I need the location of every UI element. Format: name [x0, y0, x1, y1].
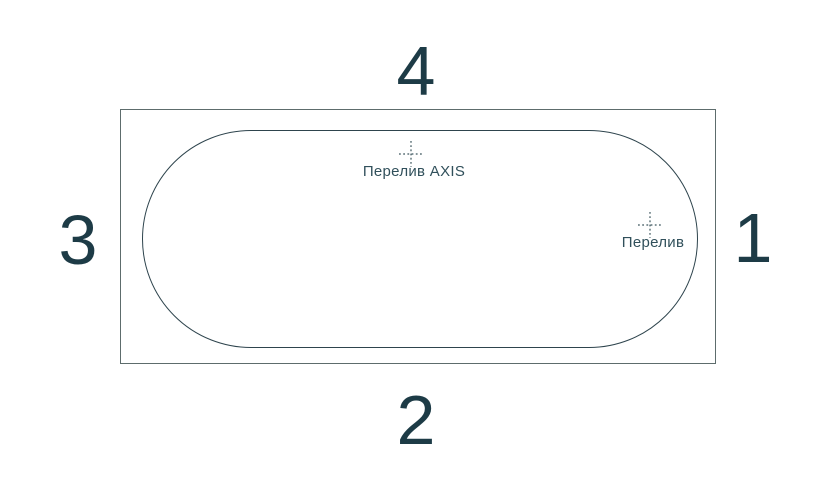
side-label-top: 4	[397, 36, 436, 106]
side-label-left: 3	[59, 205, 98, 275]
marker-overflow-label: Перелив	[622, 234, 685, 251]
bathtub-top-view-diagram: 4 1 2 3 Перелив AXIS Перелив	[0, 0, 828, 480]
side-label-right: 1	[734, 203, 773, 273]
marker-overflow-axis-label: Перелив AXIS	[363, 163, 465, 180]
side-label-bottom: 2	[397, 385, 436, 455]
